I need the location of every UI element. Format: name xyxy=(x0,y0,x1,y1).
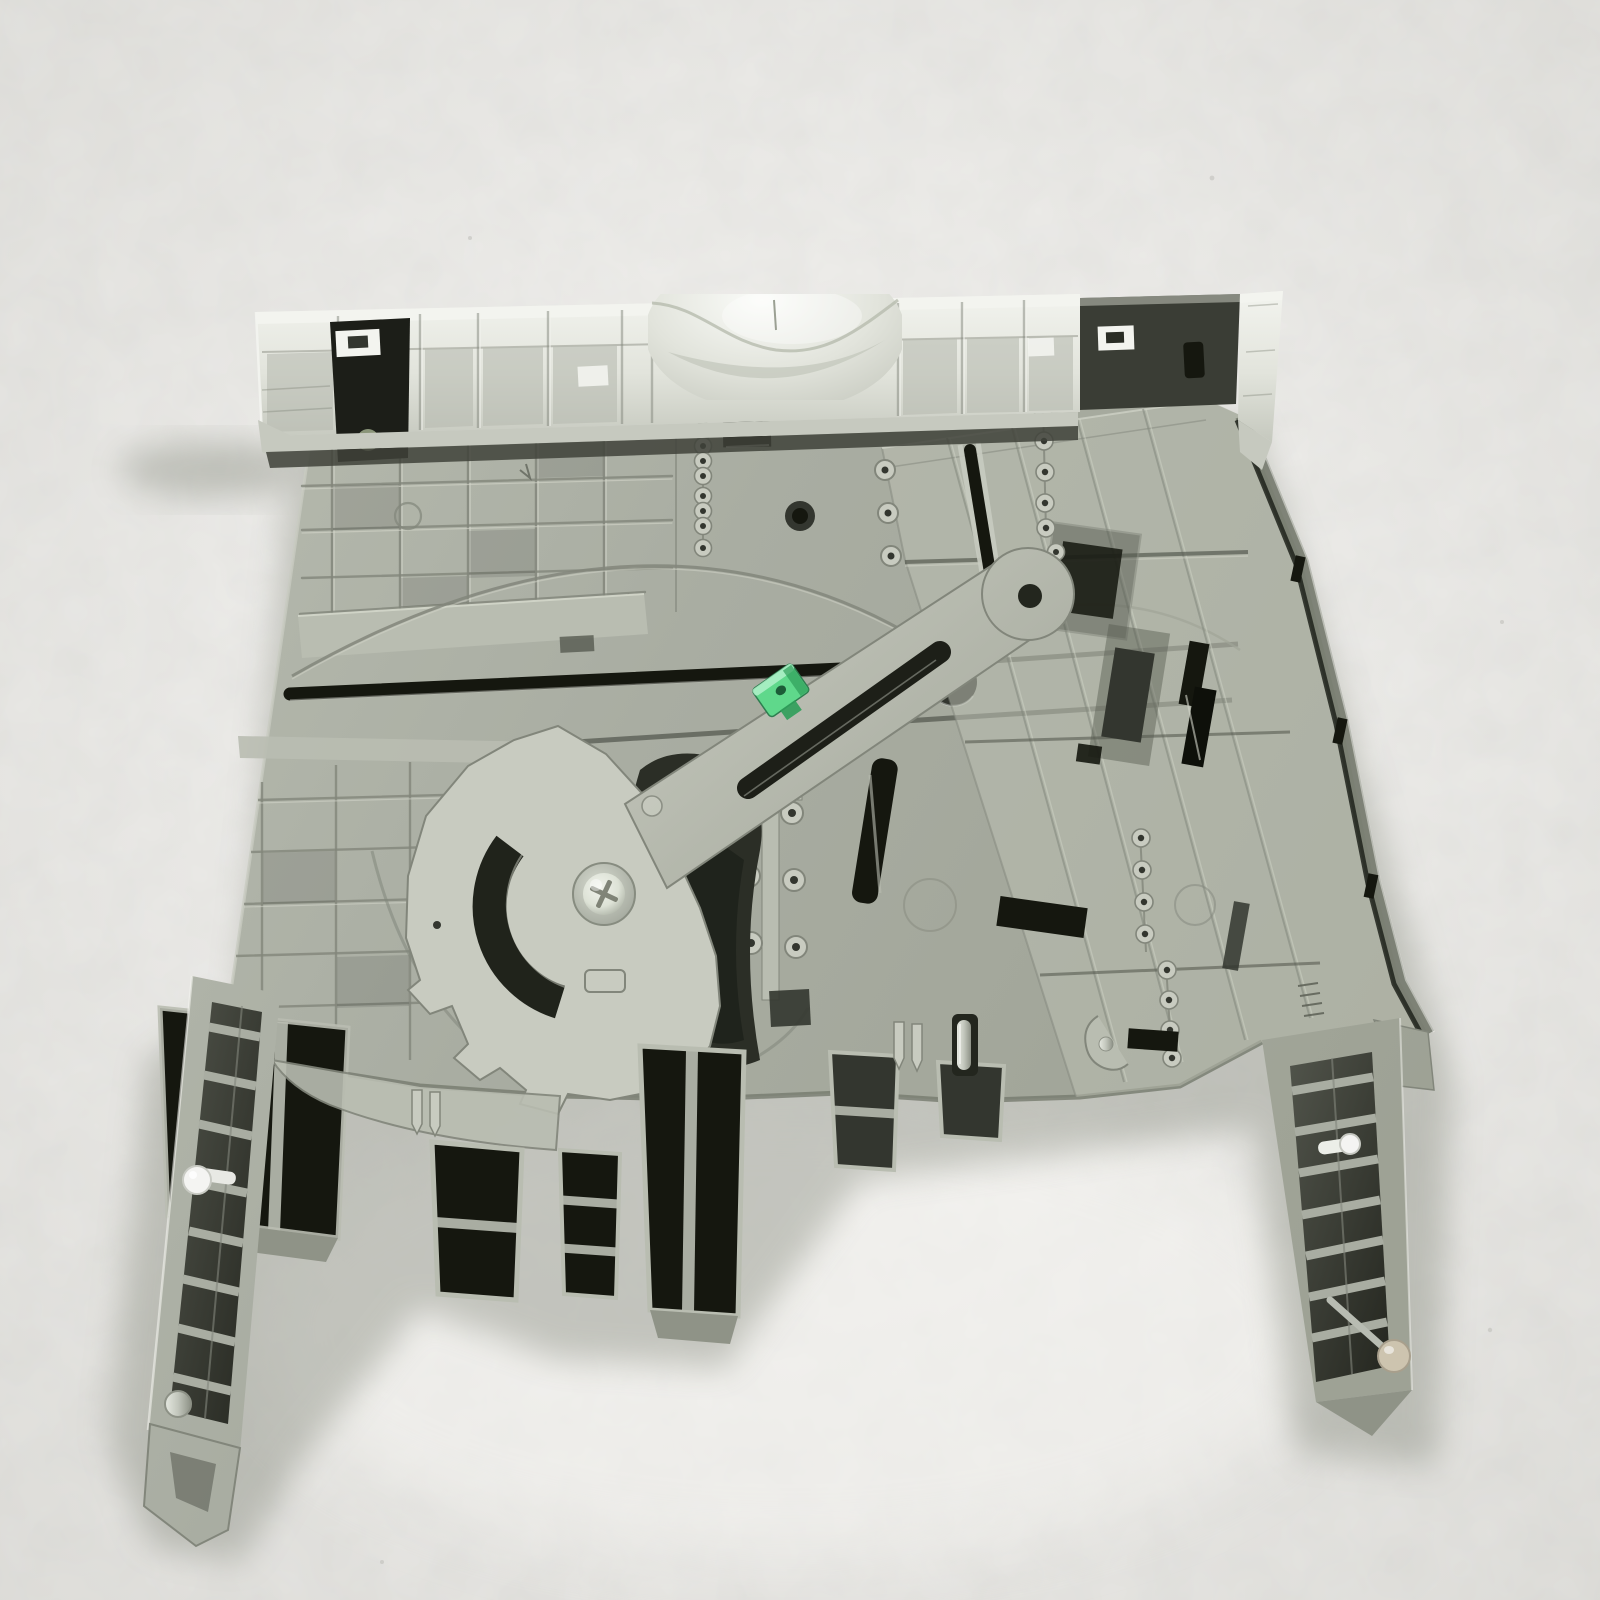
arm-boss xyxy=(642,796,662,816)
small-square-hole xyxy=(1076,743,1102,764)
block-dark-slot xyxy=(1183,342,1205,379)
round-plug-hole-core xyxy=(792,508,808,524)
roller-glare xyxy=(1384,1346,1394,1354)
pivot-screw xyxy=(573,863,635,925)
compartment-box-b xyxy=(640,1046,744,1344)
latch-slot xyxy=(1127,1028,1178,1051)
bezel-right-latch-block xyxy=(1080,294,1240,410)
arm-head-hole xyxy=(1018,584,1042,608)
dark-pocket-small xyxy=(769,989,811,1027)
sector-tab xyxy=(585,970,625,992)
left-end-roller xyxy=(165,1391,191,1417)
compartment-box-a xyxy=(560,1150,620,1298)
spring-tab-right xyxy=(1028,338,1055,357)
pocket-latch-slot xyxy=(348,335,369,348)
block-latch-slot xyxy=(1106,332,1124,344)
spring-tab-left xyxy=(577,365,608,387)
photo-stage xyxy=(0,0,1600,1600)
bar-end-notch xyxy=(560,635,595,653)
plate-pin-hole xyxy=(433,921,441,929)
metal-hinge-pin xyxy=(952,1014,978,1076)
tray-photo xyxy=(0,0,1600,1600)
compartment-box-e xyxy=(830,1052,898,1170)
sprue-stem xyxy=(762,800,779,1000)
beige-end-roller xyxy=(1378,1340,1410,1372)
compartment-box-c xyxy=(432,1142,522,1300)
latch-metal-pin xyxy=(1099,1037,1113,1051)
